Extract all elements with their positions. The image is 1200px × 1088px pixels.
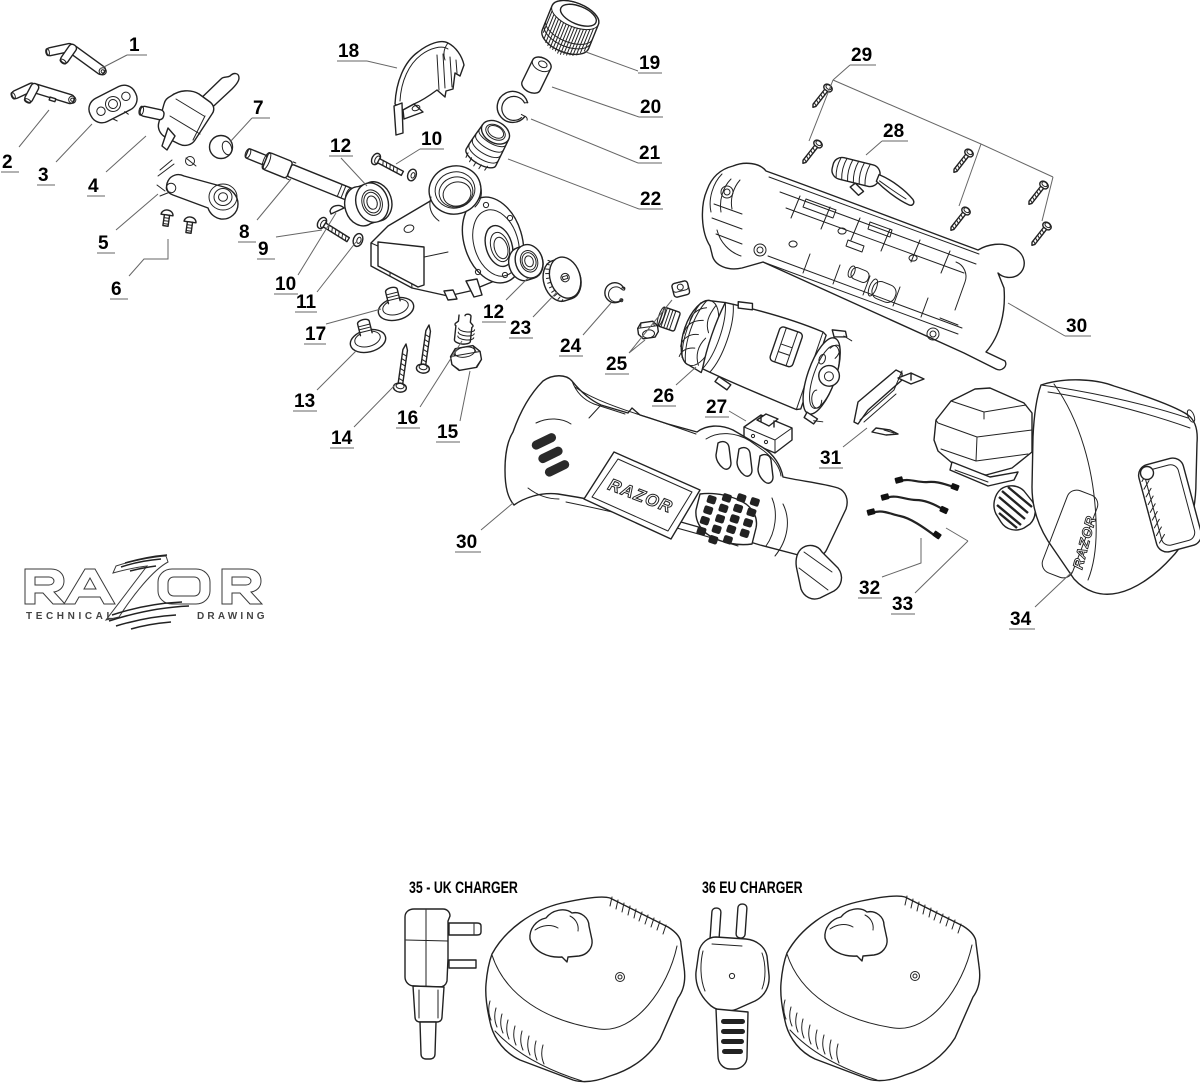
svg-text:14: 14: [331, 428, 353, 449]
svg-text:16: 16: [397, 408, 418, 429]
svg-text:34: 34: [1010, 609, 1032, 630]
svg-text:18: 18: [338, 41, 359, 62]
svg-text:1: 1: [129, 35, 140, 56]
svg-text:8: 8: [239, 222, 250, 243]
svg-text:21: 21: [639, 143, 661, 164]
svg-text:31: 31: [820, 448, 842, 469]
svg-text:32: 32: [859, 578, 880, 599]
svg-text:3: 3: [38, 165, 49, 186]
svg-text:33: 33: [892, 594, 913, 615]
svg-text:10: 10: [275, 274, 296, 295]
svg-text:30: 30: [1066, 316, 1087, 337]
svg-text:DRAWING: DRAWING: [197, 611, 268, 622]
svg-text:26: 26: [653, 386, 674, 407]
svg-text:20: 20: [640, 97, 661, 118]
svg-text:TECHNICAL: TECHNICAL: [26, 611, 116, 622]
svg-text:22: 22: [640, 189, 661, 210]
svg-text:11: 11: [296, 292, 317, 313]
svg-text:12: 12: [330, 136, 351, 157]
svg-text:6: 6: [111, 279, 122, 300]
svg-text:12: 12: [483, 302, 504, 323]
svg-text:28: 28: [883, 121, 904, 142]
svg-text:35 - UK CHARGER: 35 - UK CHARGER: [409, 879, 518, 897]
svg-text:7: 7: [253, 98, 264, 119]
svg-text:9: 9: [258, 239, 269, 260]
svg-text:5: 5: [98, 233, 109, 254]
svg-text:19: 19: [639, 53, 660, 74]
svg-text:10: 10: [421, 129, 442, 150]
svg-text:24: 24: [560, 336, 582, 357]
svg-text:13: 13: [294, 391, 315, 412]
svg-text:2: 2: [2, 152, 13, 173]
svg-text:36 EU CHARGER: 36 EU CHARGER: [702, 879, 803, 897]
svg-text:4: 4: [88, 176, 99, 197]
svg-text:25: 25: [606, 354, 628, 375]
svg-text:27: 27: [706, 397, 727, 418]
svg-text:30: 30: [456, 532, 477, 553]
svg-text:23: 23: [510, 318, 531, 339]
svg-text:17: 17: [305, 324, 326, 345]
svg-text:15: 15: [437, 422, 459, 443]
svg-text:29: 29: [851, 45, 872, 66]
